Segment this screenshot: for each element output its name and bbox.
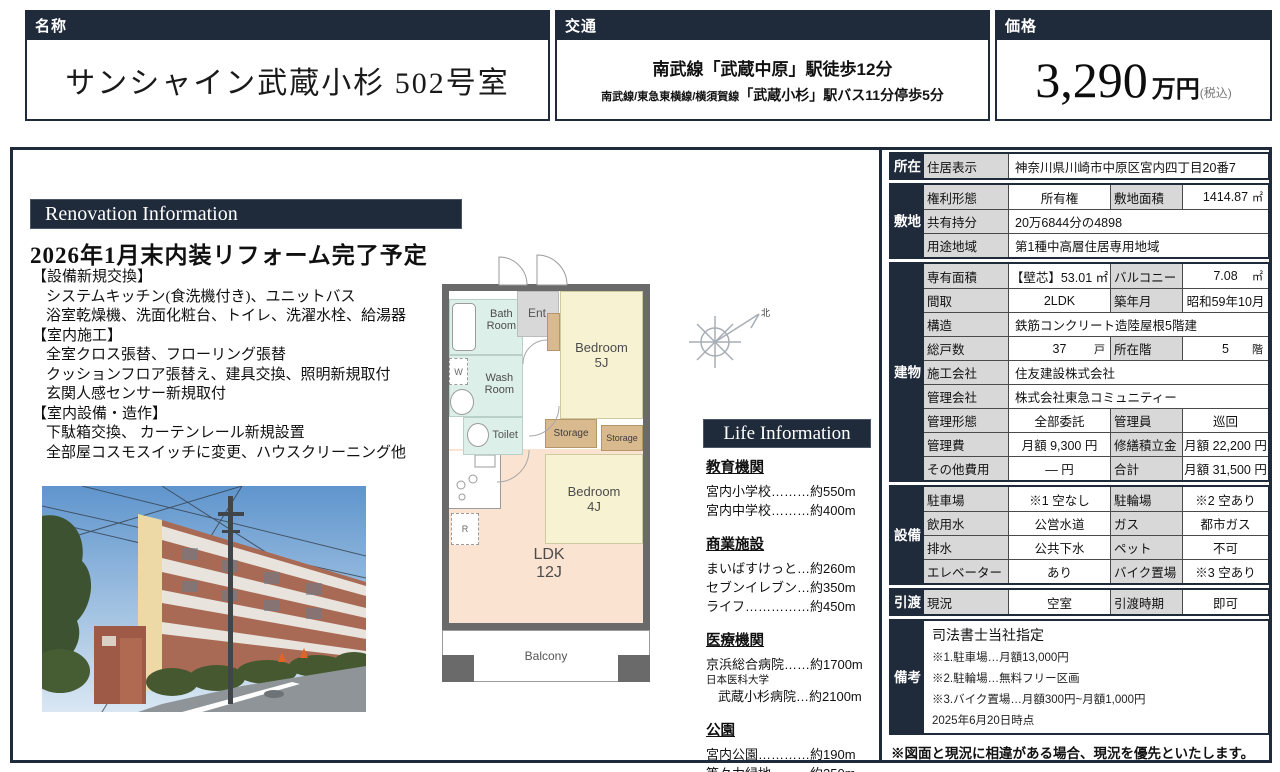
room-bedroom-4j: Bedroom 4J bbox=[545, 454, 643, 544]
floor-label: 所在階 bbox=[1110, 337, 1182, 360]
access-line2-station: 「武蔵小杉」 bbox=[739, 87, 823, 103]
mgmt-form-value: 全部委託 bbox=[1008, 409, 1110, 432]
access-line1: 南武線「武蔵中原」駅徒歩12分 bbox=[653, 55, 893, 80]
price-label-bar: 価格 bbox=[995, 10, 1272, 40]
balcony-area-label: バルコニー bbox=[1110, 264, 1182, 288]
access-label-bar: 交通 bbox=[555, 10, 990, 40]
structure-value: 鉄筋コンクリート造陸屋根5階建 bbox=[1008, 313, 1268, 336]
access-line2-lines: 南武線/東急東横線/横須賀線 bbox=[601, 91, 739, 103]
shoe-cabinet bbox=[547, 313, 560, 351]
life-park-title: 公園 bbox=[706, 719, 882, 740]
mgmt-form-label: 管理形態 bbox=[924, 409, 1008, 432]
name-label-bar: 名称 bbox=[25, 10, 550, 40]
manager-label: 管理員 bbox=[1110, 409, 1182, 432]
built-date-value: 昭和59年10月 bbox=[1182, 289, 1268, 312]
total-cost-label: 合計 bbox=[1110, 457, 1182, 480]
built-date-label: 築年月 bbox=[1110, 289, 1182, 312]
mgmt-fee-label: 管理費 bbox=[924, 433, 1008, 456]
reno-line: システムキッチン(食洗機付き)、ユニットバス bbox=[32, 288, 452, 308]
reno-line: 【設備新規交換】 bbox=[32, 268, 452, 288]
life-item: まいばすけっと…約260m bbox=[706, 559, 882, 578]
property-flyer: 名称 サンシャイン武蔵小杉 502号室 交通 南武線「武蔵中原」駅徒歩12分 南… bbox=[0, 0, 1280, 772]
price-amount: 3,290 bbox=[1035, 55, 1148, 105]
elevator-label: エレベーター bbox=[924, 560, 1008, 583]
floor-value: 5 階 bbox=[1182, 337, 1268, 360]
current-status-label: 現況 bbox=[924, 590, 1008, 614]
remarks-line: ※1.駐車場…月額13,000円 bbox=[932, 651, 1260, 665]
life-item: ライフ……………約450m bbox=[706, 597, 882, 616]
current-status-value: 空室 bbox=[1008, 590, 1110, 614]
parking-label: 駐車場 bbox=[924, 487, 1008, 511]
section-land: 敷地 権利形態 所有権 敷地面積 1414.87 ㎡ 共有持分 bbox=[889, 183, 1270, 259]
handover-time-value: 即可 bbox=[1182, 590, 1268, 614]
section-land-header: 敷地 bbox=[891, 185, 924, 257]
life-item: 日本医科大学 bbox=[706, 674, 882, 687]
elevator-value: あり bbox=[1008, 560, 1110, 583]
kitchen-counter bbox=[449, 451, 501, 509]
builder-value: 住友建設株式会社 bbox=[1008, 361, 1268, 384]
pet-label: ペット bbox=[1110, 536, 1182, 559]
handover-time-label: 引渡時期 bbox=[1110, 590, 1182, 614]
gas-label: ガス bbox=[1110, 512, 1182, 535]
storage-1: Storage bbox=[545, 419, 597, 448]
repair-fund-label: 修繕積立金 bbox=[1110, 433, 1182, 456]
section-facilities: 設備 駐車場 ※1 空なし 駐輪場 ※2 空あり 飲用水 公営水道 ガス 都 bbox=[889, 485, 1270, 585]
washer-space: W bbox=[449, 358, 468, 385]
balcony-area-value: 7.08 ㎡ bbox=[1182, 264, 1268, 288]
life-info-banner: Life Information bbox=[703, 419, 871, 448]
drainage-value: 公共下水 bbox=[1008, 536, 1110, 559]
toilet-bowl bbox=[467, 423, 489, 447]
remarks-line: ※2.駐輪場…無料フリー区画 bbox=[932, 672, 1260, 686]
exclusive-area-value: 【壁芯】53.01 ㎡ bbox=[1008, 264, 1110, 288]
reno-line: 全部屋コスモスイッチに変更、ハウスクリーニング他 bbox=[32, 444, 452, 464]
reno-line: 【室内設備・造作】 bbox=[32, 405, 452, 425]
reno-line: クッションフロア張替え、建具交換、照明新規取付 bbox=[32, 366, 452, 386]
life-item: 京浜総合病院……約1700m bbox=[706, 655, 882, 674]
vertical-divider bbox=[879, 150, 882, 760]
reno-line: 【室内施工】 bbox=[32, 327, 452, 347]
renovation-details: 【設備新規交換】 システムキッチン(食洗機付き)、ユニットバス 浴室乾燥機、洗面… bbox=[32, 268, 452, 463]
main-content-box: Renovation Information 2026年1月末内装リフォーム完了… bbox=[10, 147, 1272, 763]
balcony-corner bbox=[618, 655, 650, 682]
total-units-unit: 戸 bbox=[1094, 341, 1105, 357]
life-item: セブンイレブン…約350m bbox=[706, 578, 882, 597]
shared-portion-label: 共有持分 bbox=[924, 210, 1008, 233]
life-shopping: 商業施設 まいばすけっと…約260m セブンイレブン…約350m ライフ…………… bbox=[706, 533, 882, 616]
exclusive-area-label: 専有面積 bbox=[924, 264, 1008, 288]
manager-value: 巡回 bbox=[1182, 409, 1268, 432]
life-item: 等々力緑地………約250m bbox=[706, 764, 882, 772]
rights-label: 権利形態 bbox=[924, 185, 1008, 209]
total-units-value: 37 戸 bbox=[1008, 337, 1110, 360]
name-box: サンシャイン武蔵小杉 502号室 bbox=[25, 40, 550, 121]
svg-text:北: 北 bbox=[761, 308, 770, 318]
life-education-title: 教育機関 bbox=[706, 456, 882, 477]
section-location-header: 所在 bbox=[891, 154, 924, 178]
property-detail-table: 所在 住居表示 神奈川県川崎市中原区宮内四丁目20番7 敷地 権利形態 bbox=[889, 152, 1270, 762]
fridge-space: R bbox=[451, 513, 479, 545]
bathtub bbox=[452, 303, 476, 351]
reno-line: 全室クロス張替、フローリング張替 bbox=[32, 346, 452, 366]
compass-icon: 北 bbox=[689, 302, 773, 379]
life-item: 武蔵小杉病院…約2100m bbox=[706, 687, 882, 706]
water-value: 公営水道 bbox=[1008, 512, 1110, 535]
remarks-line: 司法書士当社指定 bbox=[932, 626, 1260, 644]
life-info: 教育機関 宮内小学校………約550m 宮内中学校………約400m 商業施設 まい… bbox=[706, 456, 882, 772]
total-cost-value: 月額 31,500 円 bbox=[1182, 457, 1268, 480]
remarks-line: ※3.バイク置場…月額300円~月額1,000円 bbox=[932, 693, 1260, 707]
parking-value: ※1 空なし bbox=[1008, 487, 1110, 511]
balcony: Balcony bbox=[442, 630, 650, 682]
washer-label: W bbox=[454, 367, 463, 377]
access-box: 南武線「武蔵中原」駅徒歩12分 南武線/東急東横線/横須賀線「武蔵小杉」駅バス1… bbox=[555, 40, 990, 121]
mgmt-fee-value: 月額 9,300 円 bbox=[1008, 433, 1110, 456]
life-education: 教育機関 宮内小学校………約550m 宮内中学校………約400m bbox=[706, 456, 882, 520]
storage-2: Storage bbox=[601, 425, 643, 451]
life-item: 宮内公園…………約190m bbox=[706, 745, 882, 764]
builder-label: 施工会社 bbox=[924, 361, 1008, 384]
life-medical: 医療機関 京浜総合病院……約1700m 日本医科大学 武蔵小杉病院…約2100m bbox=[706, 629, 882, 706]
access-line2: 南武線/東急東横線/横須賀線「武蔵小杉」駅バス11分停歩5分 bbox=[601, 85, 944, 105]
address-value: 神奈川県川崎市中原区宮内四丁目20番7 bbox=[1008, 154, 1268, 178]
property-name: サンシャイン武蔵小杉 502号室 bbox=[65, 58, 510, 102]
life-shopping-title: 商業施設 bbox=[706, 533, 882, 554]
wash-basin bbox=[450, 389, 474, 415]
bicycle-label: 駐輪場 bbox=[1110, 487, 1182, 511]
total-units-label: 総戸数 bbox=[924, 337, 1008, 360]
renovation-banner: Renovation Information bbox=[30, 199, 462, 229]
building-photo bbox=[42, 486, 366, 712]
land-area-value: 1414.87 ㎡ bbox=[1182, 185, 1268, 209]
section-building: 建物 専有面積 【壁芯】53.01 ㎡ バルコニー 7.08 ㎡ bbox=[889, 262, 1270, 482]
access-section: 交通 南武線「武蔵中原」駅徒歩12分 南武線/東急東横線/横須賀線「武蔵小杉」駅… bbox=[555, 10, 990, 121]
floor-unit: 階 bbox=[1252, 341, 1263, 357]
access-line2-walk: 駅バス11分停歩5分 bbox=[823, 87, 944, 103]
reno-line: 玄関人感センサー新規取付 bbox=[32, 385, 452, 405]
shared-portion-value: 20万6844分の4898 bbox=[1008, 210, 1268, 233]
section-facilities-header: 設備 bbox=[891, 487, 924, 583]
land-area-unit: ㎡ bbox=[1252, 189, 1263, 205]
life-park: 公園 宮内公園…………約190m 等々力緑地………約250m bbox=[706, 719, 882, 772]
layout-label: 間取 bbox=[924, 289, 1008, 312]
price-box: 3,290 万円 (税込) bbox=[995, 40, 1272, 121]
reno-line: 下駄箱交換、 カーテンレール新規設置 bbox=[32, 424, 452, 444]
zoning-label: 用途地域 bbox=[924, 234, 1008, 257]
section-building-header: 建物 bbox=[891, 264, 924, 480]
mgmt-company-label: 管理会社 bbox=[924, 385, 1008, 408]
fridge-label: R bbox=[462, 524, 469, 534]
repair-fund-value: 月額 22,200 円 bbox=[1182, 433, 1268, 456]
life-medical-title: 医療機関 bbox=[706, 629, 882, 650]
structure-label: 構造 bbox=[924, 313, 1008, 336]
life-item: 宮内小学校………約550m bbox=[706, 482, 882, 501]
balcony-area-unit: ㎡ bbox=[1252, 268, 1263, 284]
water-label: 飲用水 bbox=[924, 512, 1008, 535]
remarks-line: 2025年6月20日時点 bbox=[932, 714, 1260, 728]
mgmt-company-value: 株式会社東急コミュニティー bbox=[1008, 385, 1268, 408]
land-area-label: 敷地面積 bbox=[1110, 185, 1182, 209]
price-tax-note: (税込) bbox=[1200, 84, 1232, 101]
life-item: 宮内中学校………約400m bbox=[706, 501, 882, 520]
gas-value: 都市ガス bbox=[1182, 512, 1268, 535]
bicycle-value: ※2 空あり bbox=[1182, 487, 1268, 511]
address-label: 住居表示 bbox=[924, 154, 1008, 178]
ldk-label: LDK 12J bbox=[504, 541, 594, 587]
section-handover-header: 引渡 bbox=[891, 590, 924, 614]
reno-line: 浴室乾燥機、洗面化粧台、トイレ、洗濯水栓、給湯器 bbox=[32, 307, 452, 327]
bike-label: バイク置場 bbox=[1110, 560, 1182, 583]
price-unit: 万円 bbox=[1152, 69, 1200, 104]
section-location: 所在 住居表示 神奈川県川崎市中原区宮内四丁目20番7 bbox=[889, 152, 1270, 180]
balcony-corner bbox=[442, 655, 474, 682]
name-section: 名称 サンシャイン武蔵小杉 502号室 bbox=[25, 10, 550, 121]
pet-value: 不可 bbox=[1182, 536, 1268, 559]
section-handover: 引渡 現況 空室 引渡時期 即可 bbox=[889, 588, 1270, 616]
rights-value: 所有権 bbox=[1008, 185, 1110, 209]
zoning-value: 第1種中高層住居専用地域 bbox=[1008, 234, 1268, 257]
other-cost-value: ― 円 bbox=[1008, 457, 1110, 480]
price-section: 価格 3,290 万円 (税込) bbox=[995, 10, 1272, 121]
other-cost-label: その他費用 bbox=[924, 457, 1008, 480]
drainage-label: 排水 bbox=[924, 536, 1008, 559]
layout-value: 2LDK bbox=[1008, 289, 1110, 312]
section-remarks-header: 備考 bbox=[891, 621, 924, 733]
room-bedroom-5j: Bedroom 5J bbox=[560, 291, 643, 419]
floor-plan: R LDK 12J Bath Room bbox=[437, 254, 655, 686]
footer-disclaimer: ※図面と現況に相違がある場合、現況を優先といたします。 bbox=[889, 738, 1270, 762]
bike-value: ※3 空あり bbox=[1182, 560, 1268, 583]
section-remarks: 備考 司法書士当社指定 ※1.駐車場…月額13,000円 ※2.駐輪場…無料フリ… bbox=[889, 619, 1270, 735]
renovation-heading: 2026年1月末内装リフォーム完了予定 bbox=[30, 236, 428, 270]
